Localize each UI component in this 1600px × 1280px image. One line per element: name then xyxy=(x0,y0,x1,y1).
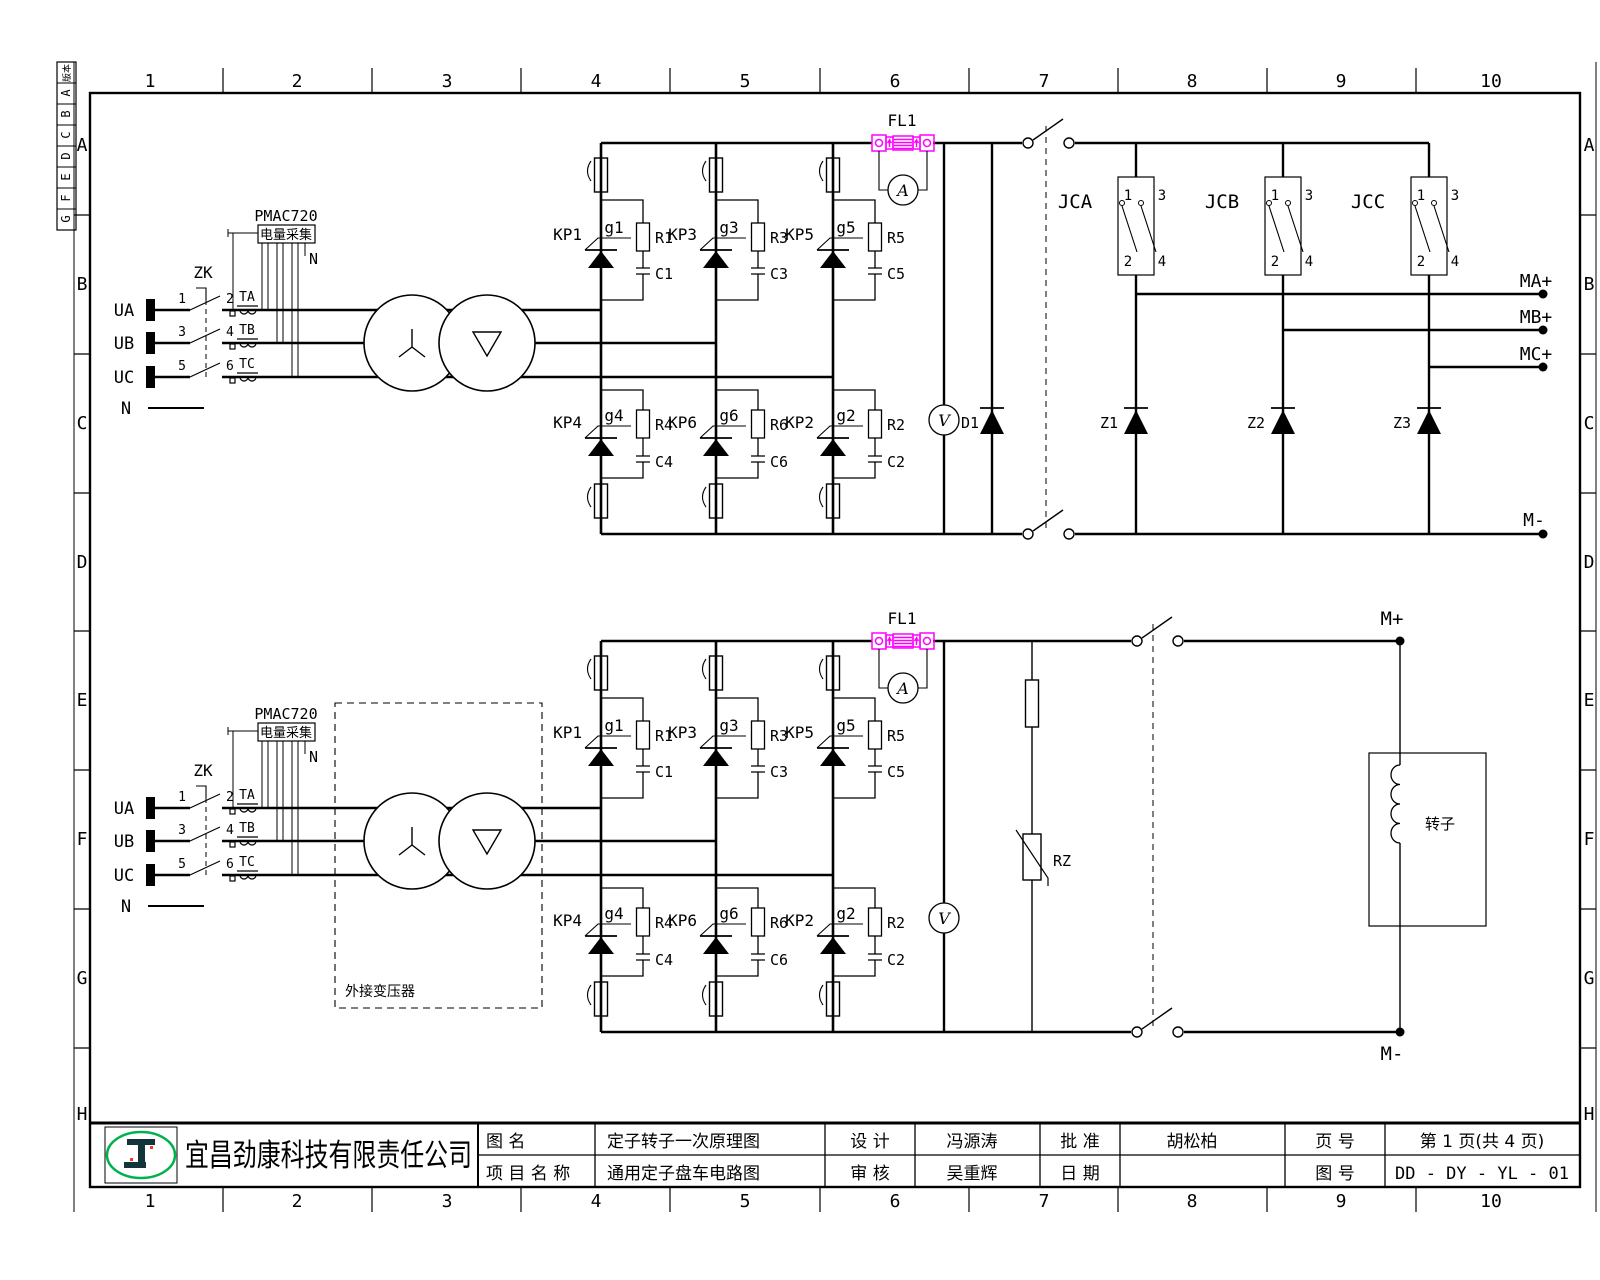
relay-label: JCA xyxy=(1058,191,1093,213)
revision-letter: B xyxy=(59,110,73,117)
row-letter: F xyxy=(77,829,88,850)
row-letter: E xyxy=(77,690,88,711)
negative-label: M- xyxy=(1523,510,1545,531)
z-diode-label: Z1 xyxy=(1100,414,1118,432)
rotor-coil-icon xyxy=(1391,765,1400,843)
row-letter: B xyxy=(77,274,88,295)
col-number: 7 xyxy=(1039,1191,1050,1212)
company-name: 宜昌劲康科技有限责任公司 xyxy=(185,1138,472,1174)
revision-letter: F xyxy=(59,194,73,201)
project-name-value: 通用定子盘车电路图 xyxy=(607,1164,760,1184)
row-letter: D xyxy=(1584,552,1595,573)
row-letter: C xyxy=(1584,413,1595,434)
row-letter: G xyxy=(77,968,88,989)
motor-pos-label: M+ xyxy=(1381,608,1404,630)
col-number: 5 xyxy=(740,71,751,92)
revision-header: 版本 xyxy=(61,64,73,82)
col-number: 4 xyxy=(591,71,602,92)
varistor-icon xyxy=(1023,834,1041,880)
col-number: 2 xyxy=(292,71,303,92)
row-letter: D xyxy=(77,552,88,573)
upper-extras: D1 JCA JCB JCC Z1 Z2 Z3 MA+ MB+ MC+ M- xyxy=(601,119,1552,539)
col-number: 8 xyxy=(1187,1191,1198,1212)
row-letter: A xyxy=(77,135,88,156)
revision-letter: A xyxy=(59,89,73,97)
upper-circuit: D1 JCA JCB JCC Z1 Z2 Z3 MA+ MB+ MC+ M- xyxy=(114,111,1553,539)
col-number: 9 xyxy=(1336,1191,1347,1212)
relay-label: JCC xyxy=(1351,191,1385,213)
page-value: 第 1 页(共 4 页) xyxy=(1420,1132,1545,1152)
lower-circuit: 外接变压器 RZ M+ 转子 M- xyxy=(114,608,1486,1065)
relay-label: JCB xyxy=(1205,191,1239,213)
relay-jcb xyxy=(1265,143,1313,534)
row-ticks xyxy=(74,215,1596,1048)
motor-phase-lines xyxy=(1136,294,1543,367)
row-letter: A xyxy=(1584,135,1595,156)
rotor-label: 转子 xyxy=(1425,815,1455,833)
row-letter: H xyxy=(77,1104,88,1125)
col-number: 7 xyxy=(1039,71,1050,92)
lower-converter xyxy=(114,609,992,1032)
col-number: 2 xyxy=(292,1191,303,1212)
designer-name: 冯源涛 xyxy=(947,1132,998,1152)
relay-jca xyxy=(1118,143,1166,534)
schematic-canvas: 1 3 2 4 UA UB UC ZK 1 2 3 4 5 6 xyxy=(0,0,1600,1280)
drawing-number-label: 图 号 xyxy=(1315,1164,1354,1184)
col-number: 5 xyxy=(740,1191,751,1212)
col-number: 6 xyxy=(890,71,901,92)
col-number: 10 xyxy=(1480,1191,1502,1212)
approver-name: 胡松柏 xyxy=(1167,1132,1218,1152)
z-diode-label: Z2 xyxy=(1247,414,1265,432)
col-number: 3 xyxy=(442,1191,453,1212)
freewheel-diode-icon xyxy=(980,410,1004,434)
output-label: MA+ xyxy=(1520,271,1553,292)
checker-name: 吴重辉 xyxy=(947,1164,998,1184)
revision-letter: E xyxy=(59,173,73,180)
row-letter: G xyxy=(1584,968,1595,989)
revision-letter: G xyxy=(59,215,73,222)
relay-jcc xyxy=(1411,143,1459,534)
date-label: 日 期 xyxy=(1060,1164,1099,1184)
freewheel-diode-label: D1 xyxy=(961,414,979,432)
z-diode-label: Z3 xyxy=(1393,414,1411,432)
varistor-label: RZ xyxy=(1053,852,1071,870)
col-number: 3 xyxy=(442,71,453,92)
revision-letter: C xyxy=(59,131,73,138)
col-number: 1 xyxy=(145,71,156,92)
col-number: 1 xyxy=(145,1191,156,1212)
ext-transformer-label: 外接变压器 xyxy=(345,983,415,1000)
row-letter: H xyxy=(1584,1104,1595,1125)
col-number: 9 xyxy=(1336,71,1347,92)
company-logo xyxy=(105,1127,177,1183)
terminal-dot xyxy=(1396,1028,1405,1037)
fuse-icon xyxy=(1026,680,1039,727)
rotor-box xyxy=(1369,753,1486,926)
drawing-name-value: 定子转子一次原理图 xyxy=(607,1132,760,1152)
output-label: MB+ xyxy=(1520,307,1553,328)
row-letter: E xyxy=(1584,690,1595,711)
drawing-name-label: 图 名 xyxy=(486,1132,525,1152)
revision-letter: D xyxy=(59,152,73,159)
approve-label: 批 准 xyxy=(1060,1132,1099,1152)
col-number: 6 xyxy=(890,1191,901,1212)
output-label: MC+ xyxy=(1520,344,1553,365)
col-number: 8 xyxy=(1187,71,1198,92)
design-label: 设 计 xyxy=(850,1132,889,1152)
varistor-branch: RZ xyxy=(1016,641,1071,1032)
motor-neg-label: M- xyxy=(1381,1043,1404,1065)
dc-disconnect-switch xyxy=(1023,119,1074,539)
drawing-number-value: DD - DY - YL - 01 xyxy=(1395,1164,1569,1184)
check-label: 审 核 xyxy=(850,1164,889,1184)
col-number: 4 xyxy=(591,1191,602,1212)
rotor-load: M+ 转子 M- xyxy=(1369,608,1486,1065)
col-number: 10 xyxy=(1480,71,1502,92)
page-label: 页 号 xyxy=(1315,1132,1354,1152)
row-letter: F xyxy=(1584,829,1595,850)
project-name-label: 项 目 名 称 xyxy=(486,1164,570,1184)
title-block: 宜昌劲康科技有限责任公司 图 名 定子转子一次原理图 项 目 名 称 通用定子盘… xyxy=(90,1123,1580,1187)
top-ruler-ticks xyxy=(223,68,1416,93)
bottom-ruler-ticks xyxy=(223,1187,1416,1212)
row-letter: C xyxy=(77,413,88,434)
dc-disconnect-switch xyxy=(1132,617,1183,1037)
row-letter: B xyxy=(1584,274,1595,295)
revision-strip: 版本 A B C D E F G xyxy=(57,62,76,230)
upper-converter xyxy=(114,111,992,534)
